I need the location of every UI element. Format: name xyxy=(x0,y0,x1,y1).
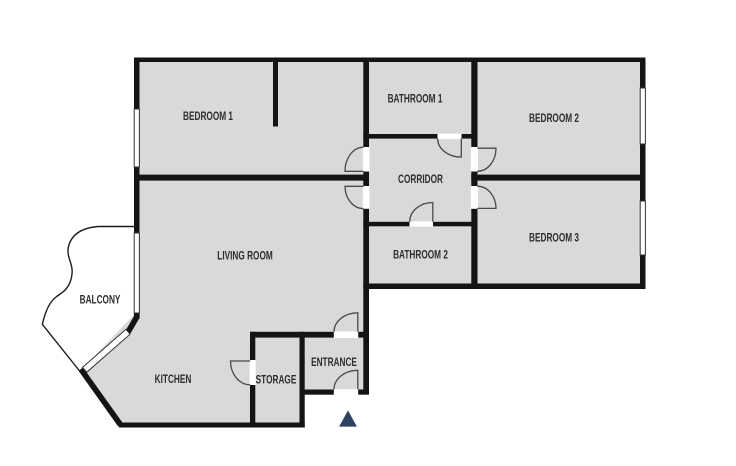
svg-text:BATHROOM 2: BATHROOM 2 xyxy=(393,249,448,262)
svg-text:BATHROOM 1: BATHROOM 1 xyxy=(388,93,443,106)
svg-text:KITCHEN: KITCHEN xyxy=(155,374,192,387)
svg-text:BEDROOM 2: BEDROOM 2 xyxy=(529,113,579,126)
svg-text:CORRIDOR: CORRIDOR xyxy=(398,174,443,187)
svg-text:BALCONY: BALCONY xyxy=(80,294,121,307)
svg-text:STORAGE: STORAGE xyxy=(256,374,297,387)
svg-text:BEDROOM 1: BEDROOM 1 xyxy=(183,111,233,124)
svg-text:BEDROOM 3: BEDROOM 3 xyxy=(529,232,579,245)
svg-text:LIVING ROOM: LIVING ROOM xyxy=(217,250,272,263)
svg-text:ENTRANCE: ENTRANCE xyxy=(311,357,357,370)
